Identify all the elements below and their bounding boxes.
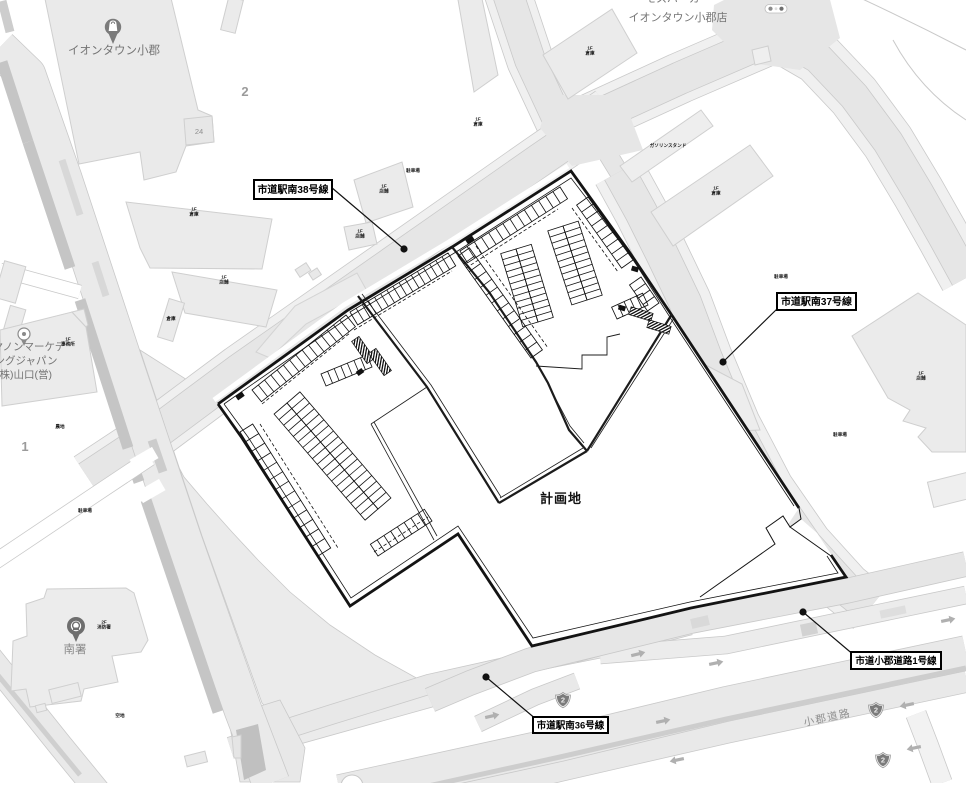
svg-text:2: 2 <box>881 756 885 765</box>
svg-text:倉庫: 倉庫 <box>165 315 176 322</box>
svg-text:倉庫: 倉庫 <box>472 121 483 128</box>
svg-text:ングジャパン: ングジャパン <box>0 354 58 367</box>
svg-text:店舗: 店舗 <box>218 279 229 286</box>
svg-text:事務所: 事務所 <box>61 341 75 348</box>
svg-text:ガソリンスタンド: ガソリンスタンド <box>650 142 687 149</box>
svg-text:店舗: 店舗 <box>378 188 389 195</box>
svg-text:市道駅南37号線: 市道駅南37号線 <box>781 295 852 308</box>
svg-text:2: 2 <box>561 696 565 705</box>
svg-text:倉庫: 倉庫 <box>710 190 721 197</box>
svg-text:倉庫: 倉庫 <box>188 211 199 218</box>
svg-text:店舗: 店舗 <box>354 233 365 240</box>
svg-text:ヤノンマーケテ: ヤノンマーケテ <box>0 341 65 353</box>
svg-text:市道駅南38号線: 市道駅南38号線 <box>257 183 328 196</box>
svg-text:駐車場: 駐車場 <box>78 507 92 514</box>
svg-text:駐車場: 駐車場 <box>774 273 788 280</box>
svg-text:市道小郡道路1号線: 市道小郡道路1号線 <box>855 655 937 667</box>
svg-text:駐車場: 駐車場 <box>406 167 420 174</box>
svg-text:24: 24 <box>195 127 203 136</box>
svg-text:1: 1 <box>21 439 28 454</box>
svg-text:倉庫: 倉庫 <box>584 50 595 57</box>
svg-text:市道駅南36号線: 市道駅南36号線 <box>537 719 605 731</box>
svg-text:計画地: 計画地 <box>540 491 582 506</box>
svg-text:(株)山口(営): (株)山口(営) <box>0 368 52 381</box>
svg-text:2: 2 <box>241 84 248 99</box>
svg-text:モスバーガー: モスバーガー <box>645 0 711 5</box>
svg-text:駐車場: 駐車場 <box>833 431 847 438</box>
svg-text:南署: 南署 <box>64 642 87 656</box>
svg-text:イオンタウン小郡店: イオンタウン小郡店 <box>629 10 728 24</box>
svg-text:イオンタウン小郡: イオンタウン小郡 <box>68 44 160 57</box>
svg-text:2: 2 <box>874 706 878 715</box>
svg-text:消防署: 消防署 <box>97 624 111 631</box>
svg-text:空地: 空地 <box>115 712 125 719</box>
svg-text:農地: 農地 <box>55 423 65 430</box>
svg-text:店舗: 店舗 <box>915 375 926 382</box>
